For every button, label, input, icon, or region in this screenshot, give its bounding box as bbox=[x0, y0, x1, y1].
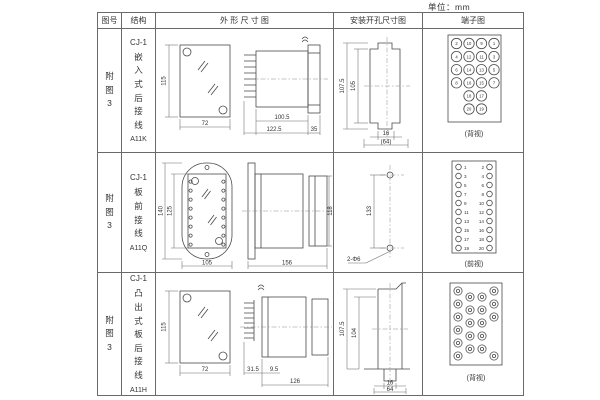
structure-row3: CJ-1 凸出式板后接线 A11H bbox=[122, 273, 155, 395]
dim-front-width: 105 bbox=[202, 261, 213, 267]
fig-number-row2: 附图3 bbox=[98, 153, 121, 272]
outline-drawing-a11k: 115 72 100.5 122.5 35 bbox=[156, 29, 333, 152]
svg-text:2: 2 bbox=[481, 165, 484, 170]
dim-body-depth: 100.5 bbox=[274, 115, 290, 121]
svg-text:6: 6 bbox=[481, 183, 484, 188]
svg-text:17: 17 bbox=[479, 94, 484, 99]
fig-number-row3: 附图3 bbox=[98, 273, 121, 395]
svg-text:8: 8 bbox=[455, 81, 458, 86]
terminal-caption: (背视) bbox=[465, 129, 484, 138]
svg-text:19: 19 bbox=[464, 246, 470, 251]
svg-text:13: 13 bbox=[464, 219, 470, 224]
dim-overall-depth: 122.5 bbox=[266, 127, 282, 133]
dim-front-height: 140 bbox=[159, 205, 165, 216]
svg-text:5: 5 bbox=[493, 67, 496, 72]
svg-text:16: 16 bbox=[479, 228, 485, 233]
col-header-structure: 结构 bbox=[122, 13, 155, 28]
svg-text:20: 20 bbox=[467, 107, 472, 112]
svg-text:16: 16 bbox=[467, 81, 472, 86]
svg-text:10: 10 bbox=[467, 41, 472, 46]
series-label: CJ-1 bbox=[130, 274, 147, 283]
dimension-table: 图号 结构 外 形 尺 寸 图 安装开孔尺寸图 端子图 附图3 CJ-1 嵌入式… bbox=[97, 12, 524, 396]
svg-text:20: 20 bbox=[479, 246, 485, 251]
svg-text:3: 3 bbox=[464, 174, 467, 179]
svg-text:7: 7 bbox=[493, 81, 496, 86]
dim-mount-v-inner: 104 bbox=[352, 327, 358, 338]
col-header-fig-no: 图号 bbox=[98, 13, 121, 28]
dim-front-width: 72 bbox=[202, 121, 209, 127]
structure-label: 凸出式板后接线 bbox=[132, 287, 145, 382]
svg-text:6: 6 bbox=[455, 67, 458, 72]
svg-text:1: 1 bbox=[493, 41, 496, 46]
svg-text:13: 13 bbox=[479, 67, 484, 72]
svg-text:14: 14 bbox=[467, 67, 472, 72]
dim-mount-v-inner: 105 bbox=[351, 80, 357, 91]
terminal-diagram-a11k: 2109141211361413581615718172019 (背视) bbox=[423, 29, 523, 152]
dim-mount-h-overall: (64) bbox=[381, 140, 392, 146]
dim-body-depth: 156 bbox=[282, 261, 293, 267]
series-label: CJ-1 bbox=[130, 173, 147, 182]
svg-text:12: 12 bbox=[479, 210, 485, 215]
dim-front-height: 115 bbox=[162, 76, 168, 86]
col-header-outline: 外 形 尺 寸 图 bbox=[156, 13, 333, 28]
dim-flange-depth: 35 bbox=[311, 127, 318, 133]
dim-pin-depth: 31.5 bbox=[247, 367, 259, 373]
svg-text:1: 1 bbox=[464, 165, 467, 170]
dim-mount-v-outer: 107.5 bbox=[340, 78, 346, 94]
structure-label: 嵌入式后接线 bbox=[132, 51, 145, 133]
dim-side-height: 118 bbox=[328, 206, 333, 216]
outline-drawing-a11h: 115 72 31.5 9.5 126 bbox=[156, 273, 333, 395]
svg-text:18: 18 bbox=[467, 94, 472, 99]
structure-row2: CJ-1 板前接线 A11Q bbox=[122, 153, 155, 272]
mounting-drawing-a11h: 107.5 104 16 64 bbox=[334, 273, 422, 395]
svg-text:8: 8 bbox=[481, 192, 484, 197]
model-label: A11Q bbox=[130, 245, 147, 252]
svg-text:3: 3 bbox=[493, 54, 496, 59]
svg-text:17: 17 bbox=[464, 237, 470, 242]
terminal-diagram-a11q: 1234567891011121314151617181920 (前视) bbox=[423, 153, 523, 272]
svg-text:15: 15 bbox=[464, 228, 470, 233]
svg-text:19: 19 bbox=[479, 107, 484, 112]
svg-text:5: 5 bbox=[464, 183, 467, 188]
svg-text:2: 2 bbox=[455, 41, 458, 46]
structure-row1: CJ-1 嵌入式后接线 A11K bbox=[122, 29, 155, 152]
svg-text:10: 10 bbox=[479, 201, 485, 206]
svg-text:9: 9 bbox=[464, 201, 467, 206]
terminal-caption: (前视) bbox=[465, 259, 484, 268]
model-label: A11K bbox=[130, 136, 147, 143]
terminal-caption: (背视) bbox=[467, 373, 486, 382]
dim-mount-h-overall: 64 bbox=[387, 387, 394, 393]
svg-text:4: 4 bbox=[455, 54, 458, 59]
col-header-mounting: 安装开孔尺寸图 bbox=[334, 13, 422, 28]
dim-inner-height: 125 bbox=[168, 205, 174, 216]
svg-text:14: 14 bbox=[479, 219, 485, 224]
dim-mount-h-slot: 16 bbox=[383, 131, 390, 137]
terminal-diagram-a11h: (背视) bbox=[423, 273, 523, 395]
svg-text:12: 12 bbox=[467, 54, 472, 59]
fig-number-row1: 附图3 bbox=[98, 29, 121, 152]
svg-text:11: 11 bbox=[464, 210, 469, 215]
mounting-drawing-a11q: 133 2-Φ6 bbox=[334, 153, 422, 272]
svg-text:18: 18 bbox=[479, 237, 485, 242]
svg-text:11: 11 bbox=[479, 54, 484, 59]
series-label: CJ-1 bbox=[130, 38, 147, 47]
structure-label: 板前接线 bbox=[132, 186, 145, 240]
dim-hole-spacing: 133 bbox=[367, 205, 373, 216]
model-label: A11H bbox=[130, 387, 147, 394]
outline-drawing-a11q: 140 125 105 156 118 bbox=[156, 153, 333, 272]
svg-text:15: 15 bbox=[479, 81, 484, 86]
dim-front-width: 72 bbox=[202, 367, 209, 373]
dim-mount-v-outer: 107.5 bbox=[340, 321, 346, 337]
dim-front-height: 115 bbox=[162, 322, 168, 332]
svg-text:4: 4 bbox=[481, 174, 484, 179]
holes-label: 2-Φ6 bbox=[347, 257, 361, 263]
mounting-drawing-a11k: 107.5 105 16 (64) bbox=[334, 29, 422, 152]
col-header-terminal: 端子图 bbox=[423, 13, 523, 28]
dim-mount-h-slot: 16 bbox=[387, 381, 394, 387]
svg-text:9: 9 bbox=[480, 41, 483, 46]
dim-body-depth: 126 bbox=[290, 379, 301, 385]
dim-gap: 9.5 bbox=[270, 367, 279, 373]
svg-text:7: 7 bbox=[464, 192, 467, 197]
